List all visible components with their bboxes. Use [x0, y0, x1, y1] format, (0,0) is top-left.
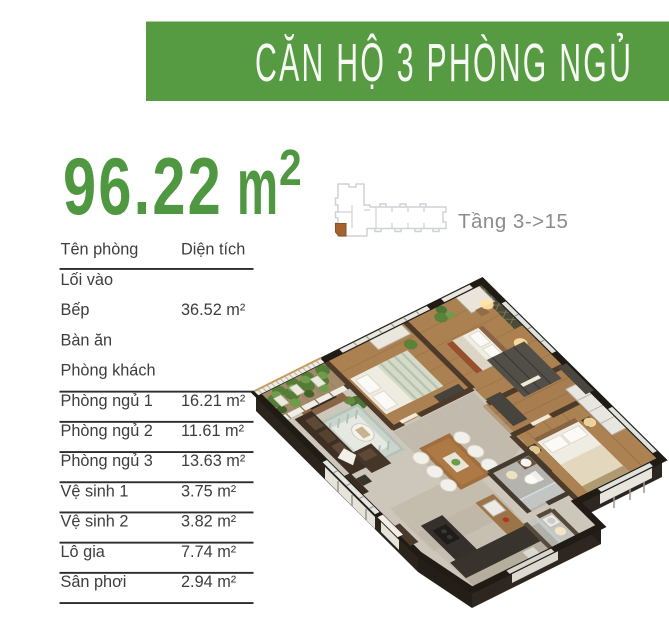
svg-text:Tầng 3->15: Tầng 3->15 [458, 210, 568, 233]
svg-text:Diện tích: Diện tích [181, 241, 245, 259]
svg-text:Phòng khách: Phòng khách [61, 362, 156, 380]
svg-text:Sân phơi: Sân phơi [61, 573, 127, 591]
svg-text:3.82 m²: 3.82 m² [181, 513, 237, 531]
svg-text:96.22: 96.22 [63, 142, 223, 232]
svg-text:11.61 m²: 11.61 m² [181, 422, 245, 440]
svg-text:Bếp: Bếp [61, 301, 90, 319]
svg-text:Bàn ăn: Bàn ăn [61, 331, 113, 349]
svg-text:3.75 m²: 3.75 m² [181, 482, 237, 500]
svg-text:Lô gia: Lô gia [61, 543, 106, 561]
svg-text:36.52 m²: 36.52 m² [181, 301, 246, 319]
svg-text:Vệ sinh 1: Vệ sinh 1 [61, 482, 129, 500]
svg-text:CĂN HỘ 3 PHÒNG NGỦ: CĂN HỘ 3 PHÒNG NGỦ [255, 31, 633, 94]
svg-text:m: m [237, 140, 278, 231]
svg-text:16.21 m²: 16.21 m² [181, 392, 246, 410]
svg-text:2: 2 [279, 139, 302, 196]
svg-text:Phòng ngủ 1: Phòng ngủ 1 [61, 392, 153, 410]
svg-text:2.94 m²: 2.94 m² [181, 573, 237, 591]
svg-text:Phòng ngủ 2: Phòng ngủ 2 [61, 422, 153, 440]
svg-text:7.74 m²: 7.74 m² [181, 543, 237, 561]
svg-text:13.63 m²: 13.63 m² [181, 452, 246, 470]
svg-text:Lối vào: Lối vào [61, 271, 114, 289]
svg-text:Phòng ngủ 3: Phòng ngủ 3 [61, 452, 153, 470]
svg-text:Tên phòng: Tên phòng [61, 241, 139, 259]
svg-text:Vệ sinh 2: Vệ sinh 2 [61, 513, 129, 531]
